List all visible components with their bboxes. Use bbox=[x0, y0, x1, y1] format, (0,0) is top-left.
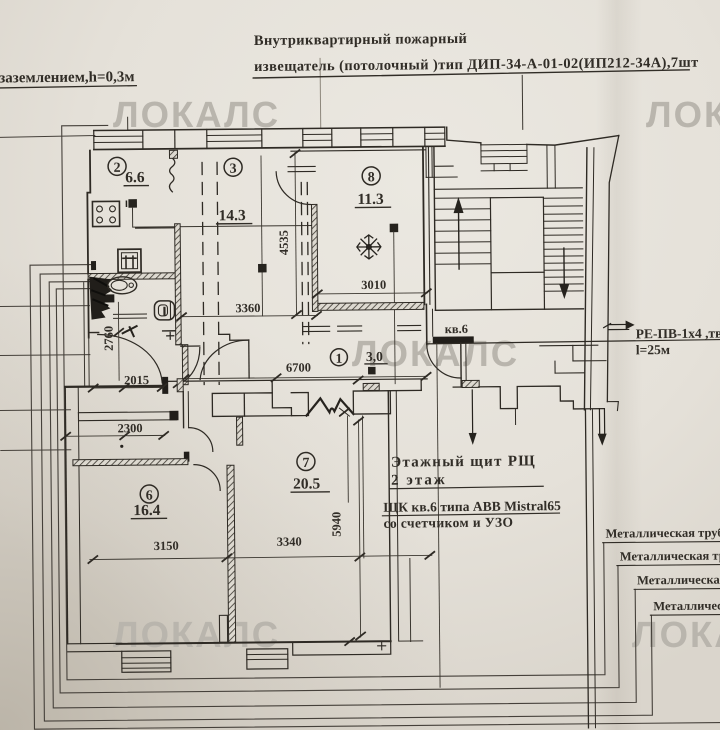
svg-text:4535: 4535 bbox=[277, 230, 291, 255]
svg-text:со счетчиком и УЗО: со счетчиком и УЗО bbox=[383, 515, 513, 531]
svg-text:11.3: 11.3 bbox=[357, 191, 384, 208]
svg-text:Металлическая труба: Металлическая труба bbox=[637, 572, 720, 587]
svg-text:3: 3 bbox=[230, 162, 237, 177]
svg-text:Металлическая труба: Металлическая труба bbox=[606, 525, 720, 540]
svg-text:l=25м: l=25м bbox=[636, 342, 670, 357]
svg-text:3360: 3360 bbox=[235, 301, 260, 315]
svg-text:РЕ-ПВ-1х4 ,тв: РЕ-ПВ-1х4 ,тв bbox=[636, 326, 720, 342]
svg-text:3,0: 3,0 bbox=[366, 349, 383, 364]
svg-text:14.3: 14.3 bbox=[218, 207, 246, 224]
svg-text:ЩК кв.6 типа АВВ Mistral65: ЩК кв.6 типа АВВ Mistral65 bbox=[383, 498, 561, 515]
svg-text:3340: 3340 bbox=[277, 535, 302, 549]
svg-text:2 этаж: 2 этаж bbox=[391, 472, 447, 489]
svg-text:3010: 3010 bbox=[361, 278, 386, 292]
svg-text:2760: 2760 bbox=[102, 326, 116, 351]
svg-text:2: 2 bbox=[114, 161, 121, 176]
svg-text:заземлением,h=0,3м: заземлением,h=0,3м bbox=[0, 69, 135, 86]
svg-text:2300: 2300 bbox=[118, 421, 143, 435]
svg-text:8: 8 bbox=[368, 170, 375, 185]
svg-text:Металлическая труба: Металлическая труба bbox=[653, 598, 720, 613]
svg-text:5940: 5940 bbox=[329, 512, 343, 537]
svg-text:6700: 6700 bbox=[286, 360, 311, 374]
svg-text:3150: 3150 bbox=[154, 539, 179, 553]
svg-text:Металлическая труба: Металлическая труба bbox=[620, 548, 720, 563]
svg-text:6.6: 6.6 bbox=[125, 169, 145, 186]
svg-text:Этажный щит РЩ: Этажный щит РЩ bbox=[391, 453, 536, 470]
svg-text:ЛОКАЛС: ЛОКАЛС bbox=[632, 614, 720, 655]
svg-text:1: 1 bbox=[335, 351, 342, 366]
svg-text:20.5: 20.5 bbox=[293, 475, 321, 492]
svg-text:ЛОКАЛС: ЛОКАЛС bbox=[646, 94, 720, 135]
svg-text:16.4: 16.4 bbox=[133, 502, 161, 519]
svg-text:Внутриквартирный пожарный: Внутриквартирный пожарный bbox=[254, 31, 468, 49]
svg-text:7: 7 bbox=[302, 456, 309, 471]
svg-text:кв.6: кв.6 bbox=[445, 322, 468, 336]
